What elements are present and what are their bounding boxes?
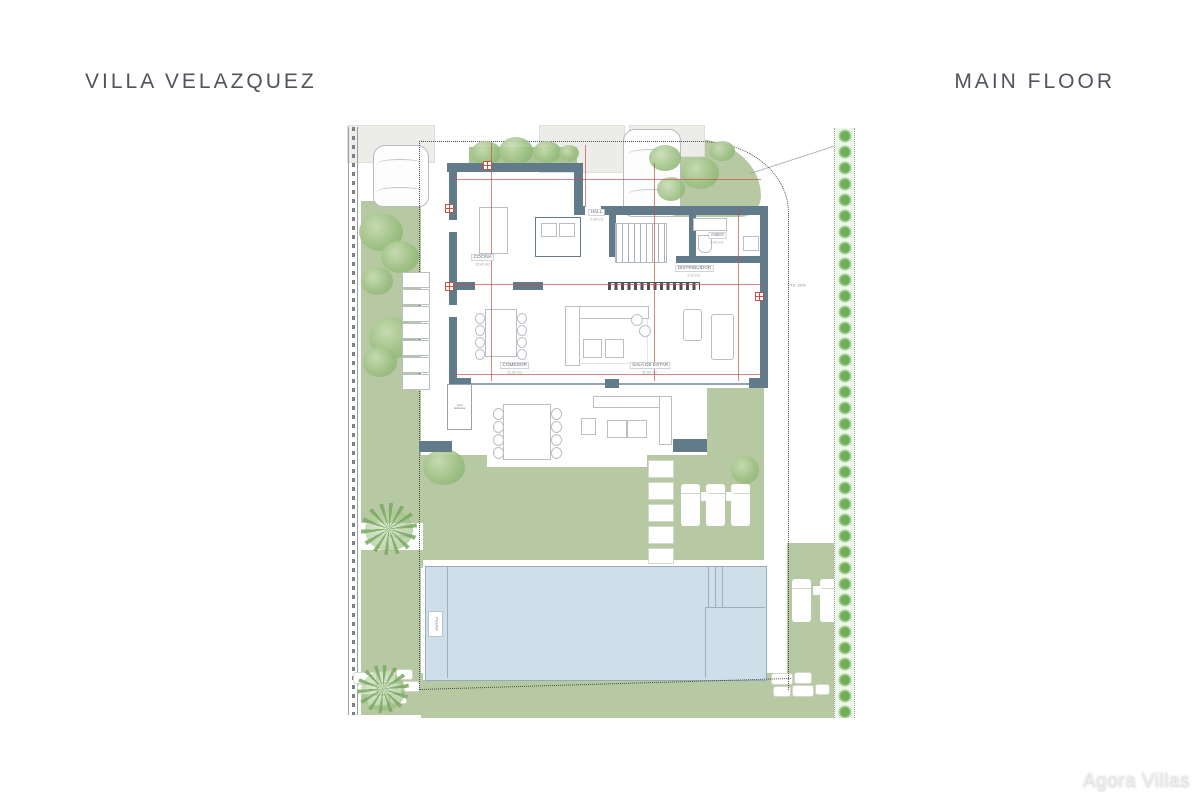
watermark: Agora Villas [1083, 770, 1190, 792]
outdoor-chair [551, 434, 562, 446]
dining-table [485, 309, 517, 357]
room-label-comedor: COMEDOR 21.80 m2 [493, 361, 537, 376]
dimension-line [654, 163, 655, 381]
dimension-line [585, 145, 586, 207]
palm-tree [361, 503, 417, 555]
bush [423, 449, 465, 485]
bush [681, 157, 719, 189]
room-name: COCINA [472, 254, 495, 261]
bbq-box: zona barbacoa [447, 384, 472, 430]
column-marker [483, 161, 492, 170]
flagstone [794, 672, 812, 684]
flagstone [815, 684, 830, 695]
paver [402, 340, 430, 356]
window-opening [449, 305, 457, 317]
flagstone [792, 685, 814, 697]
property-boundary [419, 141, 789, 690]
chaise-lounge [711, 314, 734, 360]
slope-label: PTE. 20% [788, 284, 806, 288]
outdoor-chair [493, 408, 504, 420]
bbq-label: zona barbacoa [454, 404, 465, 409]
floor-title: MAIN FLOOR [954, 70, 1115, 94]
outdoor-dining-table [503, 404, 551, 460]
room-name: SALA DE ESTAR [630, 362, 671, 369]
hedge-row [834, 128, 855, 718]
sun-lounger [792, 579, 811, 622]
bush [657, 177, 685, 201]
washbasin [743, 236, 759, 251]
room-area: 21.80 m2 [507, 371, 522, 375]
room-label-aseo: ASEO 3.50 m2 [697, 231, 737, 246]
floor-plan: CALLE VELAZQUEZ [345, 125, 855, 720]
dining-chair [475, 337, 485, 348]
outdoor-sofa-arm [659, 396, 672, 445]
outdoor-chair [551, 421, 562, 433]
wall-stub [605, 379, 619, 388]
side-table [631, 314, 643, 326]
palm-tree [357, 665, 409, 713]
outdoor-chair [493, 447, 504, 459]
bush [381, 241, 419, 273]
pouf [605, 339, 624, 358]
room-name: HALL [589, 209, 605, 216]
bench [419, 441, 452, 452]
bush [363, 347, 397, 377]
outdoor-chair [493, 434, 504, 446]
bush [559, 145, 579, 161]
kitchen-island [479, 207, 508, 254]
wall-right [760, 215, 768, 387]
paver [402, 289, 430, 305]
dimension-line [453, 284, 763, 285]
page-title: VILLA VELAZQUEZ [85, 70, 317, 94]
room-area: 5.10 m2 [687, 274, 700, 278]
outdoor-seat [607, 420, 627, 438]
dining-chair [475, 349, 485, 360]
room-label-distribuidor: DISTRIBUIDOR 5.10 m2 [671, 264, 717, 279]
side-table [639, 325, 651, 337]
window-opening [449, 220, 457, 232]
room-area: 3.50 m2 [710, 241, 723, 245]
dining-chair [517, 337, 527, 348]
bench [673, 439, 707, 452]
outdoor-chair [493, 421, 504, 433]
outdoor-seat [627, 420, 647, 438]
armchair [683, 309, 702, 341]
outdoor-chair [551, 408, 562, 420]
column-marker [445, 282, 454, 291]
room-label-sala-de-estar: SALA DE ESTAR 32.60 m2 [627, 361, 673, 376]
stairs [615, 223, 667, 263]
paver [402, 357, 430, 373]
appliance [559, 223, 575, 237]
bush [361, 267, 393, 295]
paver [402, 272, 430, 288]
room-label-hall: HALL 9.25 m2 [577, 208, 617, 223]
pouf [583, 339, 602, 358]
sofa-arm [565, 306, 580, 366]
lounger-table [813, 586, 822, 595]
outdoor-chair [551, 447, 562, 459]
bathroom-shelf [693, 218, 727, 231]
dining-chair [517, 313, 527, 324]
bush [533, 141, 561, 163]
room-name: ASEO [708, 232, 726, 239]
room-label-cocina: COCINA 15.40 m2 [461, 253, 505, 268]
bush [709, 141, 735, 161]
paver [402, 306, 430, 322]
wall-stub [749, 378, 768, 388]
car-windshield [377, 159, 423, 168]
dimension-line [453, 179, 761, 180]
column-marker [755, 292, 764, 301]
room-area: 9.25 m2 [590, 218, 603, 222]
pouf [581, 418, 596, 435]
dining-chair [517, 349, 527, 360]
dining-chair [517, 325, 527, 336]
column-marker [445, 204, 454, 213]
paver [402, 323, 430, 339]
dimension-line [738, 209, 739, 381]
paver [402, 374, 430, 390]
room-name: COMEDOR [500, 362, 529, 369]
room-area: 15.40 m2 [475, 263, 490, 267]
bush [731, 456, 759, 484]
car-rear-window [377, 187, 423, 196]
wall-top-left [447, 163, 583, 172]
appliance [541, 223, 557, 237]
bush [499, 137, 533, 165]
dining-chair [475, 325, 485, 336]
plot-fence-line [348, 127, 358, 715]
dining-chair [475, 313, 485, 324]
room-area: 32.60 m2 [642, 371, 657, 375]
room-name: DISTRIBUIDOR [675, 265, 713, 272]
